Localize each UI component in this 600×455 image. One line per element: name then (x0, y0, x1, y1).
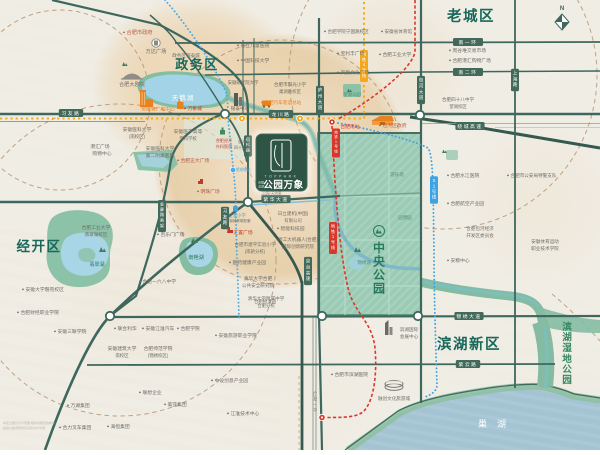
svg-text:紫云路: 紫云路 (459, 361, 478, 368)
svg-text:(南校区): (南校区) (129, 133, 146, 140)
svg-text:湖: 湖 (562, 332, 572, 344)
svg-text:合肥学院宁国路校区: 合肥学院宁国路校区 (328, 28, 370, 35)
svg-text:中国科技大学: 中国科技大学 (241, 57, 270, 64)
svg-text:绕城高速: 绕城高速 (457, 123, 482, 130)
svg-text:公: 公 (373, 268, 385, 282)
svg-text:合肥师范学院: 合肥师范学院 (144, 345, 173, 352)
svg-text:美亚集团: 美亚集团 (168, 401, 187, 408)
svg-text:TOPPARK: TOPPARK (264, 175, 298, 179)
svg-text:N: N (560, 6, 564, 12)
svg-text:有限公司: 有限公司 (284, 217, 302, 224)
svg-text:最终以政府规划及实际交付为准: 最终以政府规划及实际交付为准 (3, 425, 45, 430)
svg-text:合肥市阳光小学: 合肥市阳光小学 (274, 81, 307, 88)
svg-text:第二附属医院: 第二附属医院 (146, 152, 175, 159)
svg-text:滨湖: 滨湖 (258, 184, 264, 189)
svg-text:外科医院: 外科医院 (216, 143, 234, 150)
svg-text:道: 道 (419, 94, 424, 101)
svg-text:南艳湖: 南艳湖 (188, 253, 204, 261)
svg-text:合肥水江医院: 合肥水江医院 (451, 172, 480, 179)
svg-text:安徽医科大学: 安徽医科大学 (146, 145, 175, 152)
svg-text:合肥四十八中学: 合肥四十八中学 (442, 96, 475, 103)
svg-text:江淮小学: 江淮小学 (228, 212, 246, 219)
svg-text:包河区政府: 包河区政府 (383, 122, 407, 129)
svg-text:职业技术学院: 职业技术学院 (531, 245, 559, 252)
svg-text:百乐门广场: 百乐门广场 (161, 231, 185, 238)
svg-text:安徽大学磬苑校区: 安徽大学磬苑校区 (26, 286, 65, 293)
svg-text:铁: 铁 (334, 134, 338, 139)
svg-text:包: 包 (419, 77, 424, 83)
svg-text:望湖城站: 望湖城站 (235, 167, 250, 172)
svg-text:合肥大剧院: 合肥大剧院 (119, 80, 146, 88)
svg-text:合肥市建平实验小学: 合肥市建平实验小学 (234, 241, 276, 248)
svg-text:安徽旅游职业学院: 安徽旅游职业学院 (219, 332, 258, 339)
svg-text:翡翠湖校区: 翡翠湖校区 (85, 231, 108, 238)
svg-text:哈工大机器人(合肥): 哈工大机器人(合肥) (278, 236, 318, 243)
svg-text:专科学校: 专科学校 (179, 135, 197, 142)
svg-text:明珠广场: 明珠广场 (201, 188, 220, 195)
svg-text:公共安全研究院: 公共安全研究院 (242, 282, 275, 289)
svg-text:港汇广场: 港汇广场 (90, 143, 109, 150)
svg-text:园: 园 (562, 375, 572, 386)
svg-text:银泰中心: 银泰中心 (231, 105, 250, 112)
svg-text:联想企业: 联想企业 (143, 389, 162, 396)
svg-text:一: 一 (313, 402, 318, 407)
svg-text:万象城: 万象城 (188, 105, 203, 112)
svg-text:上: 上 (513, 70, 518, 76)
svg-text:安徽医学高等: 安徽医学高等 (174, 128, 203, 135)
svg-text:地: 地 (334, 129, 338, 134)
svg-text:湿: 湿 (562, 342, 572, 354)
svg-text:联合利华: 联合利华 (118, 325, 137, 332)
svg-text:安徽省体育馆: 安徽省体育馆 (385, 28, 413, 35)
svg-text:本区位图仅为示意图,相关内容仅供参考: 本区位图仅为示意图,相关内容仅供参考 (3, 420, 55, 425)
svg-text:经开区: 经开区 (17, 238, 62, 254)
svg-text:南二环: 南二环 (459, 69, 478, 76)
svg-text:合肥工业大学: 合肥工业大学 (82, 224, 111, 231)
svg-text:国际创新研究院: 国际创新研究院 (282, 243, 315, 250)
svg-text:南一环: 南一环 (459, 39, 478, 46)
svg-text:巢湖: 巢湖 (478, 418, 516, 429)
svg-text:天鹅湖: 天鹅湖 (172, 93, 195, 102)
svg-text:线: 线 (334, 149, 338, 154)
svg-text:合肥市政府: 合肥市政府 (127, 28, 153, 36)
svg-text:凤凰文化广场: 凤凰文化广场 (341, 69, 370, 76)
svg-text:合肥财经职业学院: 合肥财经职业学院 (21, 309, 60, 316)
svg-text:安徽体育运动: 安徽体育运动 (531, 238, 559, 245)
svg-text:合力叉车集团: 合力叉车集团 (63, 424, 92, 431)
svg-text:公园·天然里: 公园·天然里 (262, 191, 282, 196)
svg-text:医药健康产业园: 医药健康产业园 (233, 259, 267, 266)
svg-text:央: 央 (373, 254, 386, 269)
svg-text:路: 路 (513, 81, 518, 88)
svg-text:汇置广场: 汇置广场 (234, 229, 253, 236)
svg-text:S: S (433, 178, 436, 183)
svg-text:望湖公园: 望湖公园 (343, 91, 361, 98)
svg-text:会展中心: 会展中心 (400, 333, 419, 340)
svg-text:习友路: 习友路 (62, 110, 81, 117)
svg-text:合肥南站: 合肥南站 (340, 123, 359, 130)
svg-text:清华大学合肥: 清华大学合肥 (244, 275, 273, 282)
svg-text:中设创意产业园: 中设创意产业园 (215, 377, 249, 384)
svg-text:公园万象: 公园万象 (263, 179, 303, 191)
svg-text:安徽三联学院: 安徽三联学院 (58, 328, 87, 335)
svg-text:安徽省广电中心: 安徽省广电中心 (141, 106, 175, 113)
svg-text:融创文化旅游城: 融创文化旅游城 (378, 395, 411, 402)
svg-text:望湖校区: 望湖校区 (449, 103, 467, 110)
svg-text:合肥工业大学: 合肥工业大学 (383, 51, 412, 58)
svg-text:万湖集团: 万湖集团 (71, 402, 90, 409)
svg-text:锦绣湖: 锦绣湖 (357, 259, 371, 266)
svg-text:1: 1 (335, 140, 337, 144)
svg-text:四十六中: 四十六中 (234, 144, 250, 150)
svg-text:合肥经开: 合肥经开 (216, 137, 233, 144)
svg-text:滨湖国际: 滨湖国际 (400, 326, 419, 333)
svg-text:合肥正大广场: 合肥正大广场 (181, 157, 210, 164)
svg-text:智能科技园: 智能科技园 (281, 225, 305, 232)
svg-text:老城区: 老城区 (446, 7, 495, 25)
svg-text:巢湖路校区: 巢湖路校区 (279, 88, 302, 95)
svg-text:万达广场: 万达广场 (146, 47, 167, 55)
svg-text:购物中心: 购物中心 (92, 150, 111, 157)
svg-text:合肥汽车客运总站: 合肥汽车客运总站 (265, 99, 302, 106)
svg-text:合肥市滨湖医院: 合肥市滨湖医院 (335, 371, 369, 378)
svg-text:开发区委员会: 开发区委员会 (466, 232, 494, 239)
svg-text:南校区: 南校区 (115, 352, 129, 359)
svg-text:合肥港汇购物广场: 合肥港汇购物广场 (453, 57, 492, 64)
svg-text:望湖: 望湖 (238, 138, 246, 144)
svg-text:合肥包河经济: 合肥包河经济 (466, 225, 494, 232)
svg-text:(南艳分校): (南艳分校) (245, 248, 266, 255)
svg-text:政务区: 政务区 (175, 57, 219, 72)
svg-text:安徽建筑大学: 安徽建筑大学 (108, 345, 137, 352)
svg-text:号: 号 (334, 144, 338, 149)
svg-text:江淮技术中心: 江淮技术中心 (231, 410, 260, 417)
svg-text:安粮中心: 安粮中心 (451, 257, 470, 264)
svg-text:望湖城教育配套: 望湖城教育配套 (225, 218, 251, 223)
svg-text:合肥学院: 合肥学院 (181, 325, 200, 332)
svg-text:省立儿童医院: 省立儿童医院 (241, 42, 270, 49)
svg-text:日立建机(中国): 日立建机(中国) (278, 210, 309, 217)
svg-text:海恒集团: 海恒集团 (111, 423, 130, 430)
svg-text:园博园: 园博园 (398, 214, 412, 221)
svg-text:安徽医科大学: 安徽医科大学 (123, 126, 152, 133)
svg-text:合肥一六八中学: 合肥一六八中学 (143, 278, 177, 285)
svg-text:周谷堆交易市场: 周谷堆交易市场 (453, 47, 487, 54)
svg-text:游乐场: 游乐场 (390, 171, 404, 178)
svg-text:公: 公 (562, 364, 572, 375)
svg-text:中: 中 (313, 407, 317, 414)
svg-text:安徽江淮汽车: 安徽江淮汽车 (146, 325, 175, 332)
svg-text:(锦绣校区): (锦绣校区) (148, 352, 169, 359)
svg-text:中: 中 (373, 240, 385, 255)
svg-text:龙川路: 龙川路 (272, 111, 291, 118)
svg-text:线: 线 (432, 194, 437, 200)
svg-text:道: 道 (318, 104, 323, 111)
svg-text:合肥航空产业园: 合肥航空产业园 (451, 200, 485, 207)
svg-text:合肥市公安局特警支队: 合肥市公安局特警支队 (511, 172, 557, 179)
svg-text:安徽研究院大学: 安徽研究院大学 (228, 79, 259, 86)
svg-text:锦绣大道: 锦绣大道 (456, 313, 481, 320)
svg-text:地: 地 (562, 353, 572, 365)
svg-text:州: 州 (318, 94, 323, 99)
svg-text:翡翠湖: 翡翠湖 (89, 261, 104, 268)
svg-text:合肥物流园: 合肥物流园 (254, 298, 277, 305)
svg-text:滨: 滨 (562, 321, 572, 333)
svg-text:紫华大道: 紫华大道 (263, 196, 288, 203)
svg-text:河: 河 (419, 83, 424, 89)
svg-text:宝利丰广场: 宝利丰广场 (341, 50, 365, 57)
svg-text:滨湖新区: 滨湖新区 (437, 335, 501, 353)
svg-text:园: 园 (373, 282, 385, 296)
